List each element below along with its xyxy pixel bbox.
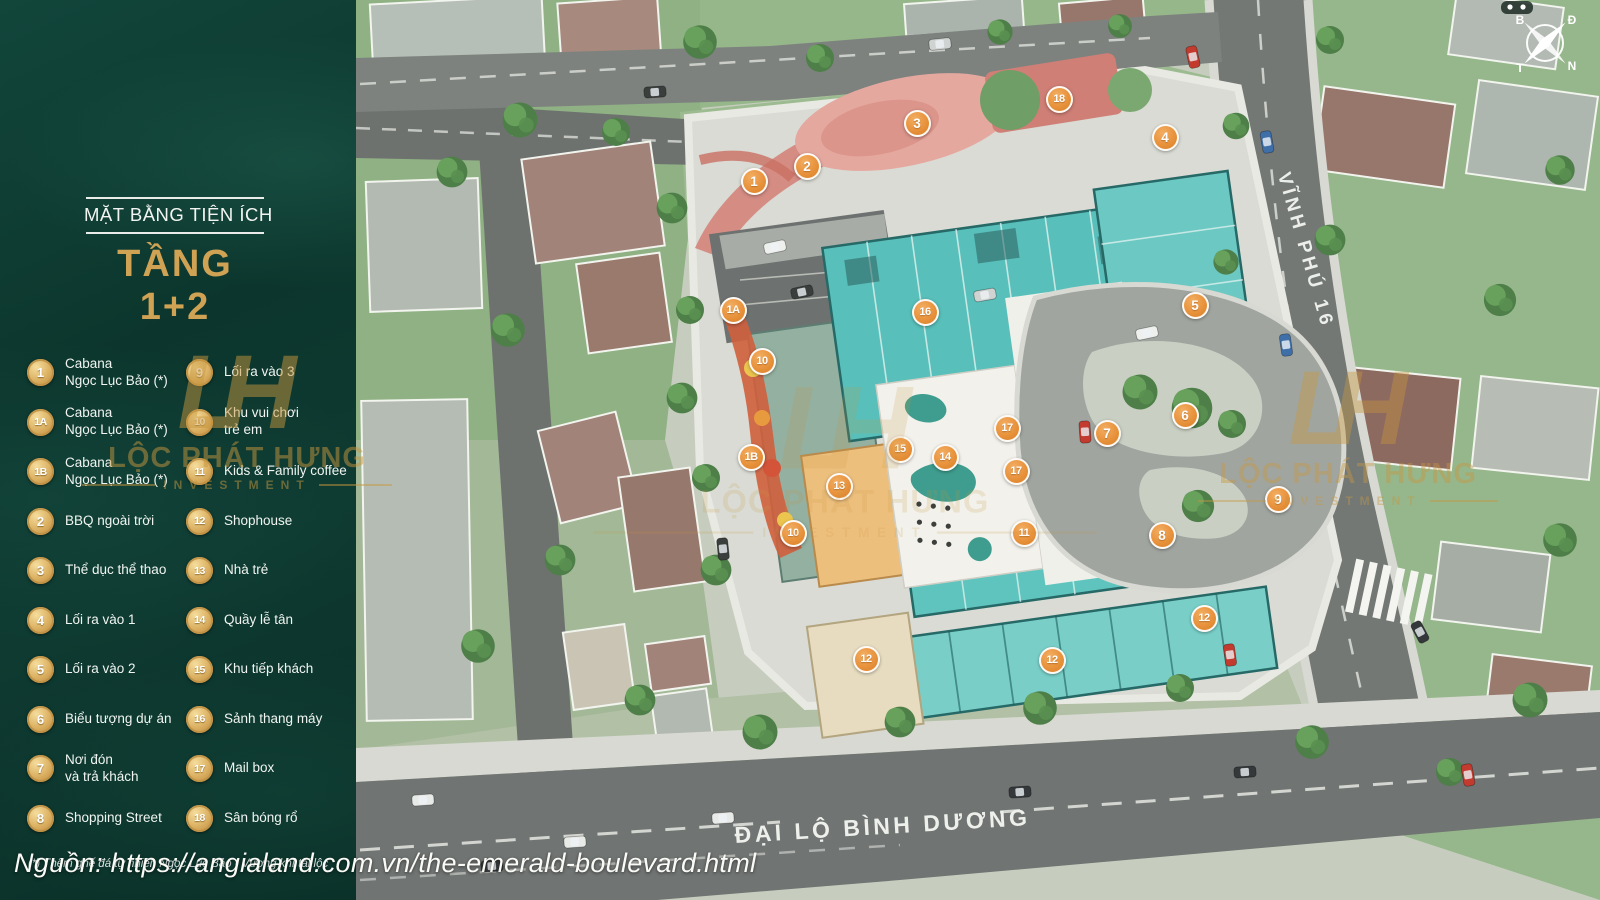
legend-label-13: Nhà trẻ (224, 562, 268, 579)
legend-item-11: 11Kids & Family coffee (186, 447, 356, 497)
legend-badge-4: 4 (27, 607, 54, 634)
legend-label-4: Lối ra vào 1 (65, 612, 136, 629)
legend-item-13: 13Nhà trẻ (186, 546, 356, 596)
legend-label-1: Cabana Ngọc Lục Bảo (*) (65, 356, 168, 390)
masterplan-screenshot: VĨNH PHÚ 16 ĐẠI LỘ BÌNH DƯƠNG B Đ T N 12… (0, 0, 1600, 900)
legend-badge-15: 15 (186, 656, 213, 683)
legend-item-1A: 1ACabana Ngọc Lục Bảo (*) (27, 398, 182, 448)
plan-title: TẦNG 1+2 (84, 234, 266, 329)
legend-badge-18: 18 (186, 805, 213, 832)
legend-item-16: 16Sảnh thang máy (186, 695, 356, 745)
legend-badge-12: 12 (186, 508, 213, 535)
legend-badge-14: 14 (186, 607, 213, 634)
legend-item-1: 1Cabana Ngọc Lục Bảo (*) (27, 348, 182, 398)
legend-badge-1B: 1B (27, 458, 54, 485)
legend-label-18: Sân bóng rổ (224, 810, 298, 827)
plan-title-block: MẶT BẰNG TIỆN ÍCH TẦNG 1+2 (84, 197, 266, 329)
legend-badge-16: 16 (186, 706, 213, 733)
legend-badge-10: 10 (186, 409, 213, 436)
legend-badge-1: 1 (27, 359, 54, 386)
legend-badge-7: 7 (27, 755, 54, 782)
legend-item-4: 4Lối ra vào 1 (27, 596, 182, 646)
legend-item-14: 14Quầy lễ tân (186, 596, 356, 646)
legend-label-2: BBQ ngoài trời (65, 513, 154, 530)
legend-item-9: 9Lối ra vào 3 (186, 348, 356, 398)
legend-item-17: 17Mail box (186, 744, 356, 794)
legend-label-16: Sảnh thang máy (224, 711, 322, 728)
legend-badge-5: 5 (27, 656, 54, 683)
legend-item-6: 6Biểu tượng dự án (27, 695, 182, 745)
legend-item-3: 3Thể dục thể thao (27, 546, 182, 596)
compass-e: Đ (1568, 13, 1577, 27)
plan-subtitle: MẶT BẰNG TIỆN ÍCH (84, 199, 266, 232)
legend-badge-11: 11 (186, 458, 213, 485)
legend-item-12: 12Shophouse (186, 497, 356, 547)
legend-label-10: Khu vui chơi trẻ em (224, 405, 299, 439)
legend-badge-13: 13 (186, 557, 213, 584)
legend-label-3: Thể dục thể thao (65, 562, 166, 579)
legend-badge-3: 3 (27, 557, 54, 584)
compass-w: T (1516, 61, 1524, 75)
legend-label-15: Khu tiếp khách (224, 661, 313, 678)
legend-badge-6: 6 (27, 706, 54, 733)
legend-label-1A: Cabana Ngọc Lục Bảo (*) (65, 405, 168, 439)
legend-item-18: 18Sân bóng rổ (186, 794, 356, 844)
compass-s: N (1568, 59, 1577, 73)
compass-n: B (1516, 13, 1525, 27)
legend-badge-17: 17 (186, 755, 213, 782)
legend-label-14: Quầy lễ tân (224, 612, 293, 629)
legend-item-8: 8Shopping Street (27, 794, 182, 844)
legend-label-5: Lối ra vào 2 (65, 661, 136, 678)
legend-label-9: Lối ra vào 3 (224, 364, 295, 381)
legend-sidebar: MẶT BẰNG TIỆN ÍCH TẦNG 1+2 1Cabana Ngọc … (0, 0, 356, 900)
legend-column-left: 1Cabana Ngọc Lục Bảo (*)1ACabana Ngọc Lụ… (27, 348, 182, 843)
legend-label-6: Biểu tượng dự án (65, 711, 172, 728)
legend-label-12: Shophouse (224, 513, 292, 530)
drop-off-loop (1017, 284, 1344, 590)
legend-badge-2: 2 (27, 508, 54, 535)
source-credit: Nguồn: https://angialand.com.vn/the-emer… (14, 848, 756, 879)
legend-item-15: 15Khu tiếp khách (186, 645, 356, 695)
legend-label-1B: Cabana Ngọc Lục Bảo (*) (65, 455, 168, 489)
legend-badge-8: 8 (27, 805, 54, 832)
legend-badge-1A: 1A (27, 409, 54, 436)
mini-badge-icon (1501, 1, 1533, 14)
legend-item-1B: 1BCabana Ngọc Lục Bảo (*) (27, 447, 182, 497)
legend-item-7: 7Nơi đón và trả khách (27, 744, 182, 794)
legend-badge-9: 9 (186, 359, 213, 386)
legend-column-right: 9Lối ra vào 310Khu vui chơi trẻ em11Kids… (186, 348, 356, 843)
legend-item-10: 10Khu vui chơi trẻ em (186, 398, 356, 448)
legend-label-7: Nơi đón và trả khách (65, 752, 139, 786)
legend-label-11: Kids & Family coffee (224, 463, 347, 480)
legend-label-8: Shopping Street (65, 810, 162, 827)
legend-item-5: 5Lối ra vào 2 (27, 645, 182, 695)
legend-label-17: Mail box (224, 760, 274, 777)
legend-item-2: 2BBQ ngoài trời (27, 497, 182, 547)
